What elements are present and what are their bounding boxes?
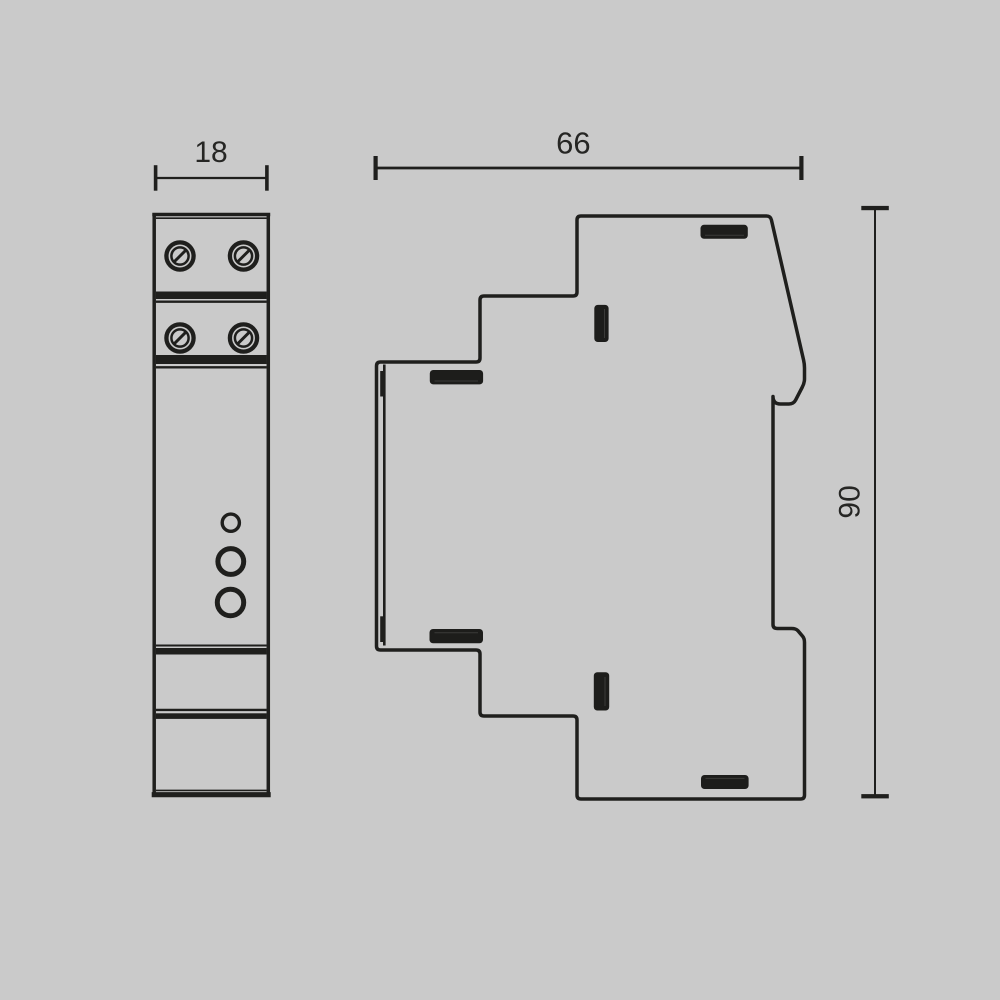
svg-text:66: 66 [556, 126, 590, 161]
svg-text:18: 18 [194, 136, 227, 169]
svg-text:90: 90 [834, 485, 867, 518]
